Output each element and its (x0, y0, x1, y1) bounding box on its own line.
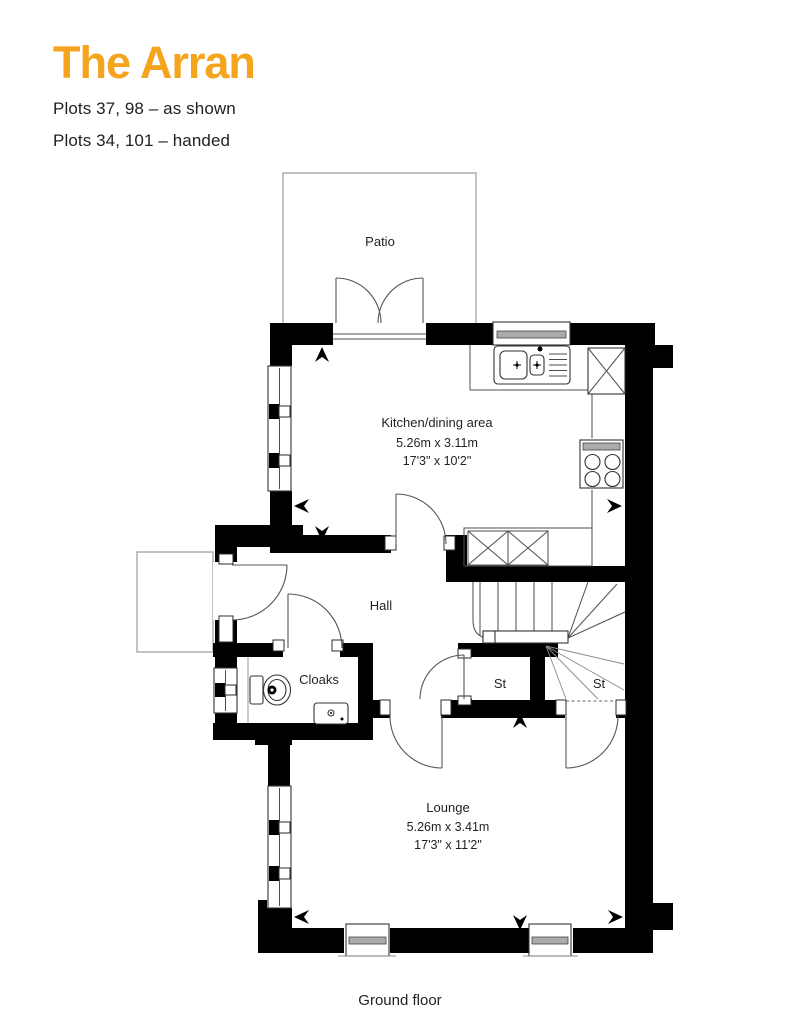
cloaks-window (214, 668, 237, 713)
kitchen-label: Kitchen/dining area (381, 415, 493, 430)
kitchen-side-window (268, 366, 291, 491)
cloaks-label: Cloaks (299, 672, 339, 687)
tall-unit (588, 348, 625, 394)
toilet (248, 657, 291, 723)
kitchen-dim-metric: 5.26m x 3.11m (396, 436, 478, 450)
kitchen-sink (494, 346, 570, 384)
floor-caption: Ground floor (0, 992, 800, 1009)
lounge-side-window (268, 786, 291, 908)
lounge-front-window-1 (338, 924, 396, 956)
lounge-front-window-2 (523, 924, 578, 956)
floor-plan: Patio Kitchen/dining area 5.26m x 3.11m … (0, 0, 800, 1036)
lounge-label: Lounge (426, 800, 469, 815)
kitchen-dim-imperial: 17'3" x 10'2" (403, 454, 472, 468)
store-left-label: St (494, 676, 507, 691)
lounge-dim-metric: 5.26m x 3.41m (407, 820, 490, 834)
hob (580, 440, 623, 488)
appliance-units (464, 528, 592, 566)
lounge-dim-imperial: 17'3" x 11'2" (414, 838, 482, 852)
patio-label: Patio (365, 234, 395, 249)
porch-outline (137, 552, 213, 652)
staircase (473, 582, 625, 643)
kitchen-rear-window (493, 322, 570, 345)
hall-label: Hall (370, 598, 393, 613)
store-right-label: St (593, 676, 606, 691)
hand-basin (314, 703, 348, 724)
